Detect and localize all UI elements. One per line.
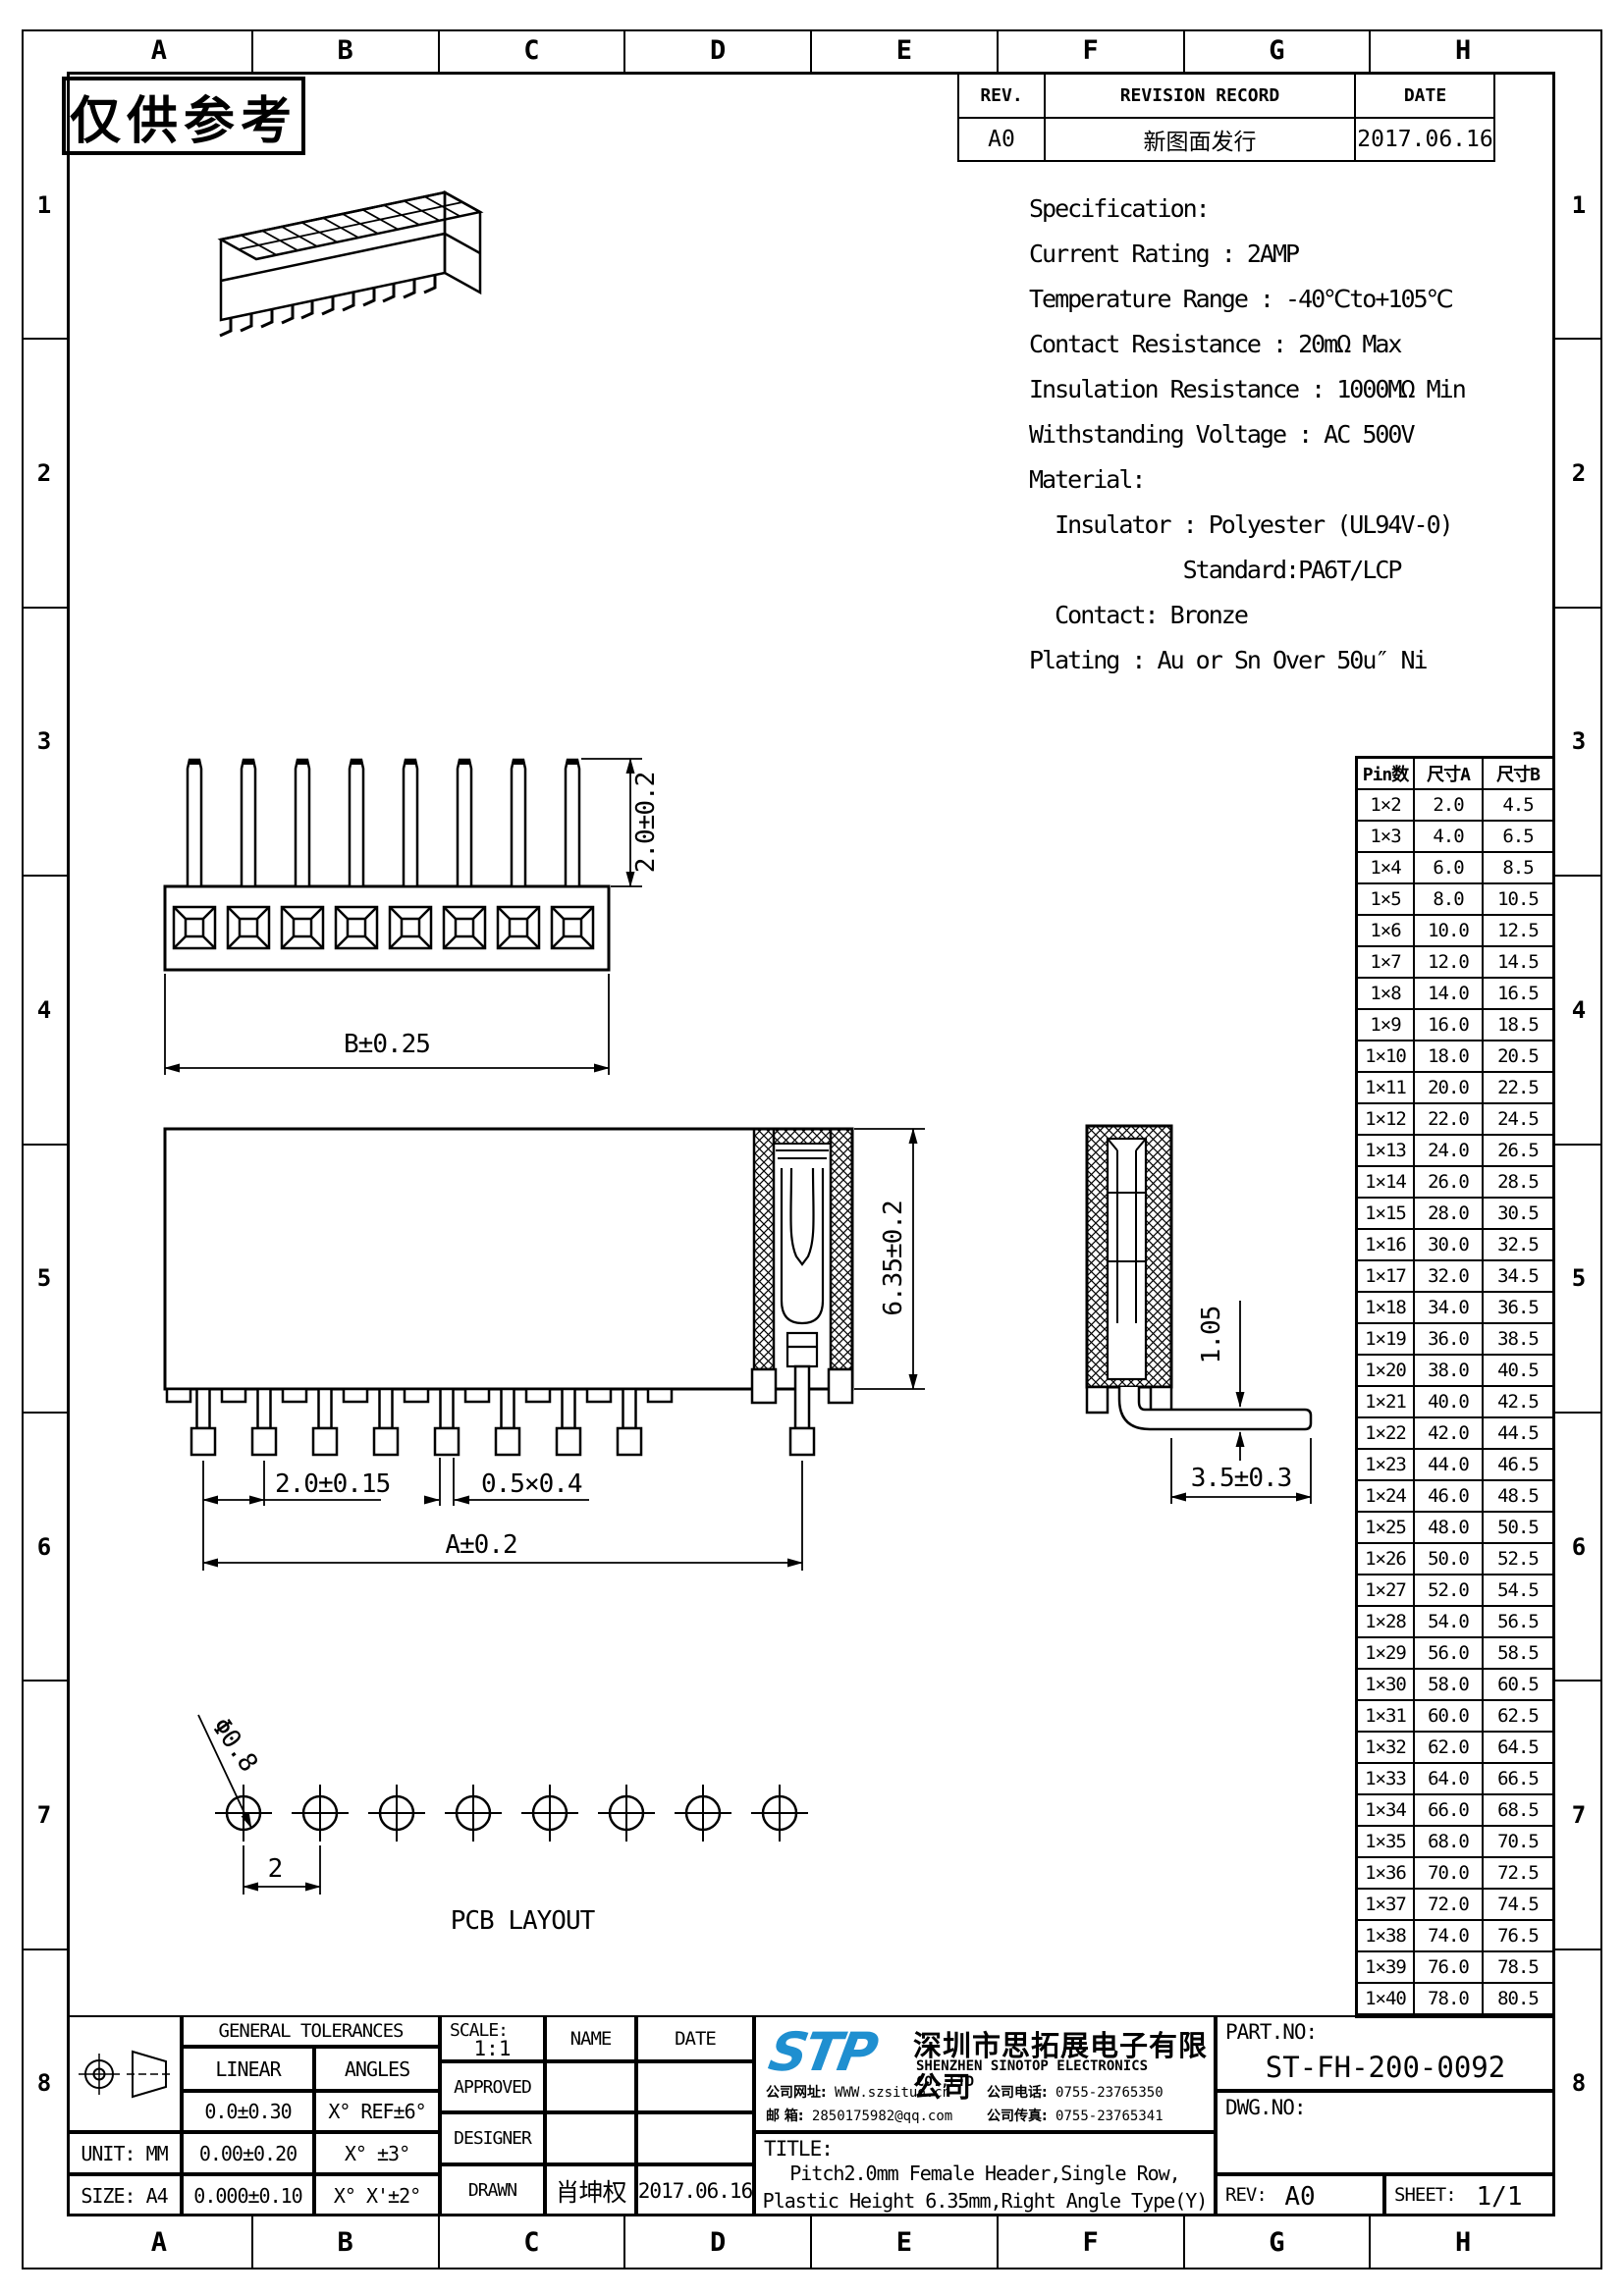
spec-line: Current Rating : 2AMP [1029,232,1540,277]
drawn-name: 肖坤权 [545,2164,636,2216]
dim-b-cell: 38.5 [1484,1324,1552,1356]
dim-b-cell: 10.5 [1484,884,1552,916]
dim-pin-section: 0.5×0.4 [481,1469,582,1499]
grid-column-label: G [1185,2216,1372,2268]
pin-count-cell: 1×20 [1358,1356,1415,1387]
grid-row-label: 7 [1555,1682,1602,1949]
dim-b-cell: 26.5 [1484,1136,1552,1167]
dim-b-cell: 58.5 [1484,1638,1552,1670]
approved-name-cell [545,2061,636,2112]
reference-only-stamp: 仅供参考 [62,77,305,155]
dim-a-cell: 76.0 [1415,1952,1484,1984]
dim-pitch: 2.0±0.15 [275,1469,390,1499]
grid-row-label: 5 [1555,1146,1602,1414]
spec-line: Contact Resistance : 20mΩ Max [1029,322,1540,367]
projection-symbol-icon [70,2039,180,2109]
drawn-date: 2017.06.16 [636,2164,754,2216]
grid-row-label: 6 [22,1414,67,1682]
phone-value: 0755-23765350 [1056,2085,1164,2101]
dim-a-cell: 4.0 [1415,822,1484,853]
pin-count-cell: 1×3 [1358,822,1415,853]
grid-column-label: G [1185,29,1372,72]
title-line1: Pitch2.0mm Female Header,Single Row, [756,2162,1214,2185]
grid-column-label: F [999,2216,1185,2268]
pin-count-cell: 1×22 [1358,1418,1415,1450]
dim-b-cell: 40.5 [1484,1356,1552,1387]
designer-name-cell [545,2112,636,2164]
pin-count-cell: 1×38 [1358,1921,1415,1952]
revision-col-date: DATE [1354,74,1494,117]
dim-a-cell: 66.0 [1415,1795,1484,1827]
dim-b-cell: 24.5 [1484,1104,1552,1136]
dim-a-cell: 48.0 [1415,1513,1484,1544]
dwg-no-cell: DWG.NO: [1216,2091,1555,2174]
pin-count-cell: 1×27 [1358,1575,1415,1607]
date-header: DATE [636,2015,754,2061]
pin-count-cell: 1×32 [1358,1733,1415,1764]
dim-a-cell: 44.0 [1415,1450,1484,1481]
top-view: 2.0±0.2 B±0.25 [128,736,707,1082]
part-no-label: PART.NO: [1225,2020,1317,2044]
dim-a-cell: 28.0 [1415,1199,1484,1230]
dim-hole-dia: Φ0.8 [205,1713,262,1777]
revision-col-record: REVISION RECORD [1044,74,1354,117]
dim-b-cell: 72.5 [1484,1858,1552,1890]
grid-row-label: 2 [1555,340,1602,608]
unit-cell: UNIT: MM [67,2132,182,2174]
pin-count-cell: 1×11 [1358,1073,1415,1104]
grid-row-label: 8 [1555,1950,1602,2216]
dim-b-cell: 42.5 [1484,1387,1552,1418]
side-view-channel [1108,1139,1146,1379]
revision-col-rev: REV. [959,74,1044,117]
title-cell: TITLE: Pitch2.0mm Female Header,Single R… [754,2132,1216,2216]
dim-a-cell: 6.0 [1415,853,1484,884]
pin-count-cell: 1×40 [1358,1984,1415,2015]
dim-b-cell: 32.5 [1484,1230,1552,1261]
dim-b-cell: 66.5 [1484,1764,1552,1795]
linear-label: LINEAR [182,2047,314,2091]
spec-line: Temperature Range : -40℃to+105℃ [1029,277,1540,322]
pin-table-header: Pin数 [1358,759,1415,790]
grid-row-label: 5 [22,1146,67,1414]
grid-columns-top: ABCDEFGH [67,29,1555,72]
website-value: WWW.szsituo.cn [835,2085,950,2101]
dim-a-cell: 40.0 [1415,1387,1484,1418]
pin-count-cell: 1×29 [1358,1638,1415,1670]
rev-value: A0 [1218,2182,1382,2212]
approved-label: APPROVED [440,2061,545,2112]
pcb-holes [215,1785,808,1842]
dim-hole-pitch: 2 [268,1854,283,1884]
pin-count-cell: 1×36 [1358,1858,1415,1890]
pin-count-cell: 1×15 [1358,1199,1415,1230]
pin-count-cell: 1×7 [1358,947,1415,979]
pin-count-cell: 1×16 [1358,1230,1415,1261]
grid-row-label: 3 [22,609,67,877]
pcb-layout-view: Φ0.8 2 PCB LAYOUT [137,1659,844,1953]
sheet-cell: SHEET: 1/1 [1384,2174,1555,2216]
dim-a-cell: 42.0 [1415,1418,1484,1450]
dim-a-cell: 32.0 [1415,1261,1484,1293]
dim-b-cell: 14.5 [1484,947,1552,979]
dwg-no-label: DWG.NO: [1225,2096,1306,2119]
dim-a-cell: 50.0 [1415,1544,1484,1575]
dim-a-cell: 26.0 [1415,1167,1484,1199]
designer-date-cell [636,2112,754,2164]
email-value: 2850175982@qq.com [812,2109,952,2124]
tolerance-linear-1: 0.0±0.30 [182,2091,314,2132]
grid-columns-bottom: ABCDEFGH [67,2216,1555,2268]
pin-count-cell: 1×25 [1358,1513,1415,1544]
spec-line: Contact: Bronze [1029,593,1540,638]
grid-column-label: E [812,29,999,72]
grid-column-label: C [440,29,626,72]
tolerance-linear-3: 0.000±0.10 [182,2174,314,2216]
grid-column-label: D [625,29,812,72]
dim-b-cell: 36.5 [1484,1293,1552,1324]
front-view-body [165,1129,852,1389]
pin-count-cell: 1×21 [1358,1387,1415,1418]
tolerance-angle-3: X° X'±2° [314,2174,440,2216]
dim-span: A±0.2 [445,1530,516,1560]
dim-b-cell: 22.5 [1484,1073,1552,1104]
spec-line: Standard:PA6T/LCP [1029,548,1540,593]
dim-b-cell: 56.5 [1484,1607,1552,1638]
grid-column-label: A [67,29,253,72]
general-tolerances-title: GENERAL TOLERANCES [182,2015,440,2047]
dim-a-cell: 12.0 [1415,947,1484,979]
dim-pin-length: 2.0±0.2 [631,773,661,874]
pin-count-cell: 1×17 [1358,1261,1415,1293]
dim-a-cell: 46.0 [1415,1481,1484,1513]
pin-dimension-table: Pin数 尺寸A 尺寸B 1×2 2.0 4.5 1×3 4.0 6.5 1×4… [1355,756,1555,2018]
grid-row-label: 7 [22,1682,67,1949]
dim-tail-length: 3.5±0.3 [1191,1464,1292,1493]
dim-b-cell: 60.5 [1484,1670,1552,1701]
dim-b-cell: 18.5 [1484,1010,1552,1041]
size-cell: SIZE: A4 [67,2174,182,2216]
grid-rows-left: 12345678 [22,72,67,2216]
dim-a-cell: 54.0 [1415,1607,1484,1638]
pin-count-cell: 1×12 [1358,1104,1415,1136]
dim-b-cell: 64.5 [1484,1733,1552,1764]
spec-line: Specification: [1029,187,1540,232]
dim-a-cell: 38.0 [1415,1356,1484,1387]
fax-label: 公司传真: [987,2109,1048,2124]
dim-b-cell: 44.5 [1484,1418,1552,1450]
dim-a-cell: 36.0 [1415,1324,1484,1356]
front-view: 2.0±0.15 0.5×0.4 A±0.2 6.35±0.2 [128,1109,962,1580]
title-label: TITLE: [764,2137,833,2161]
dim-a-cell: 74.0 [1415,1921,1484,1952]
pin-count-cell: 1×28 [1358,1607,1415,1638]
spec-line: Insulator : Polyester (UL94V-0) [1029,503,1540,548]
grid-column-label: D [625,2216,812,2268]
phone-label: 公司电话: [987,2085,1048,2101]
title-line2: Plastic Height 6.35mm,Right Angle Type(Y… [756,2189,1214,2213]
dim-a-cell: 58.0 [1415,1670,1484,1701]
pin-count-cell: 1×2 [1358,790,1415,822]
grid-row-label: 8 [22,1950,67,2216]
pin-count-cell: 1×37 [1358,1890,1415,1921]
pin-count-cell: 1×14 [1358,1167,1415,1199]
dim-a-cell: 14.0 [1415,979,1484,1010]
dim-a-cell: 68.0 [1415,1827,1484,1858]
grid-column-label: C [440,2216,626,2268]
dim-b-cell: 74.5 [1484,1890,1552,1921]
dim-b-cell: 46.5 [1484,1450,1552,1481]
revision-table: REV. REVISION RECORD DATE A0 新图面发行 2017.… [957,72,1495,162]
pin-count-cell: 1×23 [1358,1450,1415,1481]
spec-line: Plating : Au or Sn Over 50u″ Ni [1029,638,1540,683]
drawn-label: DRAWN [440,2164,545,2216]
iso-pins [220,275,435,336]
dim-a-cell: 62.0 [1415,1733,1484,1764]
pin-table-header: 尺寸A [1415,759,1484,790]
company-cell: STP 深圳市思拓展电子有限公司 SHENZHEN SINOTOP ELECTR… [754,2015,1216,2132]
pin-count-cell: 1×4 [1358,853,1415,884]
dim-b-cell: 68.5 [1484,1795,1552,1827]
designer-label: DESIGNER [440,2112,545,2164]
sheet-value: 1/1 [1445,2182,1553,2212]
pin-count-cell: 1×13 [1358,1136,1415,1167]
dim-b-cell: 50.5 [1484,1513,1552,1544]
dim-b-cell: 34.5 [1484,1261,1552,1293]
dim-b-cell: 8.5 [1484,853,1552,884]
dim-b-cell: 62.5 [1484,1701,1552,1733]
dim-b-cell: 70.5 [1484,1827,1552,1858]
revision-record-value: 新图面发行 [1044,117,1354,160]
dim-a-cell: 52.0 [1415,1575,1484,1607]
front-view-pins [191,1366,814,1455]
pin-count-cell: 1×30 [1358,1670,1415,1701]
grid-column-label: E [812,2216,999,2268]
pin-count-cell: 1×24 [1358,1481,1415,1513]
pin-count-cell: 1×34 [1358,1795,1415,1827]
dim-b-cell: 52.5 [1484,1544,1552,1575]
pin-count-cell: 1×8 [1358,979,1415,1010]
tolerance-linear-2: 0.00±0.20 [182,2132,314,2174]
dim-b-cell: 54.5 [1484,1575,1552,1607]
front-view-standoffs [167,1389,672,1402]
pcb-layout-label: PCB LAYOUT [451,1906,596,1936]
tolerance-angle-1: X° REF±6° [314,2091,440,2132]
part-no-value: ST-FH-200-0092 [1218,2051,1553,2084]
contact-spring [782,1168,823,1366]
dim-b-cell: 6.5 [1484,822,1552,853]
pin-table-header: 尺寸B [1484,759,1552,790]
dim-body-width-lines [165,974,609,1075]
side-foot-left [1087,1387,1108,1413]
pin-count-cell: 1×26 [1358,1544,1415,1575]
rev-cell: REV: A0 [1216,2174,1384,2216]
dim-b-cell: 20.5 [1484,1041,1552,1073]
pin-count-cell: 1×5 [1358,884,1415,916]
dim-a-cell: 78.0 [1415,1984,1484,2015]
angles-label: ANGLES [314,2047,440,2091]
dim-a-cell: 72.0 [1415,1890,1484,1921]
revision-rev-value: A0 [959,117,1044,160]
grid-row-label: 3 [1555,609,1602,877]
dim-tail-offset: 1.05 [1197,1307,1226,1364]
website-label: 公司网址: [766,2085,827,2101]
scale-cell: SCALE: 1:1 [440,2015,545,2061]
grid-row-label: 1 [22,72,67,340]
dim-b-cell: 4.5 [1484,790,1552,822]
pin-count-cell: 1×35 [1358,1827,1415,1858]
company-contacts: 公司网址: WWW.szsituo.cn 公司电话: 0755-23765350… [766,2082,1210,2125]
pin-count-cell: 1×33 [1358,1764,1415,1795]
dim-b-cell: 48.5 [1484,1481,1552,1513]
grid-column-label: F [999,29,1185,72]
top-view-pins [188,759,579,886]
spec-line: Insulation Resistance : 1000MΩ Min [1029,367,1540,412]
pin-count-cell: 1×18 [1358,1293,1415,1324]
grid-column-label: H [1371,2216,1555,2268]
pin-count-cell: 1×10 [1358,1041,1415,1073]
dim-a-cell: 2.0 [1415,790,1484,822]
dim-b-cell: 30.5 [1484,1199,1552,1230]
dim-a-cell: 70.0 [1415,1858,1484,1890]
dim-a-cell: 34.0 [1415,1293,1484,1324]
dim-a-cell: 24.0 [1415,1136,1484,1167]
dim-a-cell: 56.0 [1415,1638,1484,1670]
grid-row-label: 6 [1555,1414,1602,1682]
side-view-pin [1119,1387,1311,1429]
dim-b-cell: 16.5 [1484,979,1552,1010]
fax-value: 0755-23765341 [1056,2109,1164,2124]
name-header: NAME [545,2015,636,2061]
dim-a-cell: 60.0 [1415,1701,1484,1733]
tolerance-angle-2: X° ±3° [314,2132,440,2174]
dim-a-cell: 22.0 [1415,1104,1484,1136]
grid-row-label: 1 [1555,72,1602,340]
grid-column-label: B [253,29,440,72]
pin-count-cell: 1×6 [1358,916,1415,947]
specification-text: Specification:Current Rating : 2AMPTempe… [1029,187,1540,683]
side-view: 1.05 3.5±0.3 [1060,1099,1355,1522]
isometric-view [191,179,525,385]
spec-line: Material: [1029,457,1540,503]
pin-count-cell: 1×39 [1358,1952,1415,1984]
dim-a-cell: 10.0 [1415,916,1484,947]
projection-symbol-cell [67,2015,182,2132]
email-label: 邮 箱: [766,2109,803,2124]
dim-height: 6.35±0.2 [879,1201,908,1315]
grid-column-label: H [1371,29,1555,72]
company-logo: STP [764,2021,879,2083]
top-view-sockets [174,907,593,948]
scale-value: 1:1 [442,2037,543,2060]
dim-a-cell: 20.0 [1415,1073,1484,1104]
dim-b-cell: 28.5 [1484,1167,1552,1199]
dim-body-width: B±0.25 [344,1030,430,1059]
revision-date-value: 2017.06.16 [1354,117,1494,160]
grid-column-label: B [253,2216,440,2268]
grid-column-label: A [67,2216,253,2268]
approved-date-cell [636,2061,754,2112]
grid-row-label: 4 [22,877,67,1145]
dim-a-cell: 64.0 [1415,1764,1484,1795]
dim-a-cell: 30.0 [1415,1230,1484,1261]
pin-count-cell: 1×19 [1358,1324,1415,1356]
part-no-cell: PART.NO: ST-FH-200-0092 [1216,2015,1555,2091]
top-view-body [165,886,609,970]
dim-b-cell: 76.5 [1484,1921,1552,1952]
grid-row-label: 4 [1555,877,1602,1145]
drawing-sheet: ABCDEFGH ABCDEFGH 12345678 12345678 仅供参考… [0,0,1624,2296]
spec-line: Withstanding Voltage : AC 500V [1029,412,1540,457]
grid-row-label: 2 [22,340,67,608]
dim-a-cell: 16.0 [1415,1010,1484,1041]
dim-b-cell: 12.5 [1484,916,1552,947]
dim-b-cell: 80.5 [1484,1984,1552,2015]
grid-rows-right: 12345678 [1555,72,1602,2216]
dim-a-cell: 8.0 [1415,884,1484,916]
dim-a-cell: 18.0 [1415,1041,1484,1073]
pin-count-cell: 1×31 [1358,1701,1415,1733]
pin-count-cell: 1×9 [1358,1010,1415,1041]
dim-b-cell: 78.5 [1484,1952,1552,1984]
